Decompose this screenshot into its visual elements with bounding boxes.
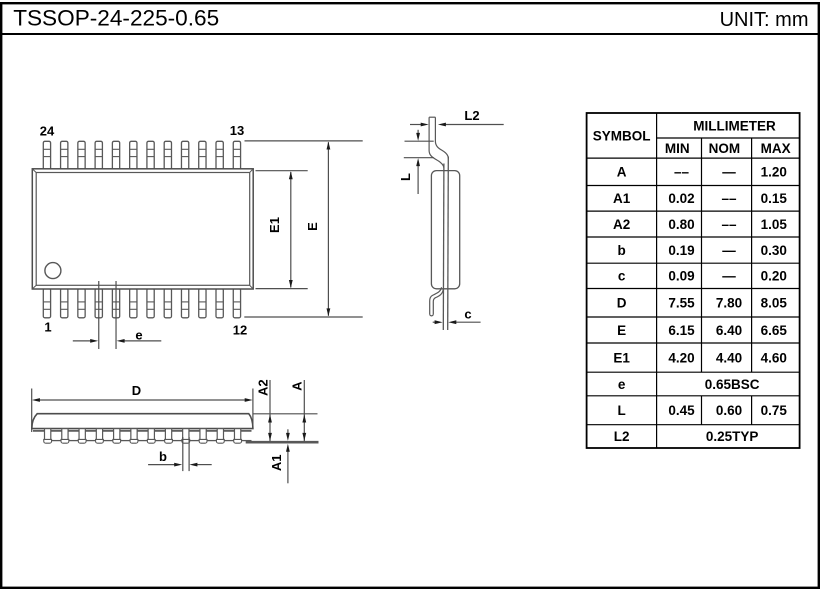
svg-text:MILLIMETER: MILLIMETER xyxy=(693,118,776,133)
svg-text:A1: A1 xyxy=(613,191,631,206)
svg-text:7.80: 7.80 xyxy=(716,296,742,311)
svg-text:A: A xyxy=(617,165,627,180)
svg-text:6.65: 6.65 xyxy=(761,323,788,338)
svg-text:13: 13 xyxy=(230,123,244,138)
svg-text:A: A xyxy=(289,381,304,391)
svg-text:b: b xyxy=(159,449,167,464)
svg-text:L2: L2 xyxy=(464,108,479,123)
svg-text:0.65BSC: 0.65BSC xyxy=(705,377,760,392)
svg-text:TSSOP-24-225-0.65: TSSOP-24-225-0.65 xyxy=(13,5,219,30)
svg-text:c: c xyxy=(618,269,626,284)
svg-text:12: 12 xyxy=(233,323,247,338)
svg-text:—: — xyxy=(722,165,736,180)
svg-text:A2: A2 xyxy=(613,217,630,232)
svg-text:E: E xyxy=(305,222,320,231)
svg-text:––: –– xyxy=(722,191,738,206)
svg-text:4.60: 4.60 xyxy=(761,350,787,365)
svg-text:UNIT: mm: UNIT: mm xyxy=(720,9,809,31)
svg-text:L: L xyxy=(617,403,625,418)
svg-text:24: 24 xyxy=(40,124,55,139)
svg-text:0.09: 0.09 xyxy=(668,269,694,284)
svg-text:4.40: 4.40 xyxy=(716,350,742,365)
svg-text:6.40: 6.40 xyxy=(716,323,742,338)
svg-text:e: e xyxy=(135,328,142,343)
svg-text:E1: E1 xyxy=(267,217,282,233)
svg-text:––: –– xyxy=(722,217,738,232)
svg-text:L2: L2 xyxy=(614,429,630,444)
svg-text:—: — xyxy=(722,243,736,258)
svg-text:6.15: 6.15 xyxy=(668,323,695,338)
svg-text:E: E xyxy=(617,323,626,338)
svg-text:e: e xyxy=(618,377,626,392)
svg-text:1.20: 1.20 xyxy=(761,165,787,180)
svg-text:MIN: MIN xyxy=(665,141,690,156)
svg-text:1.05: 1.05 xyxy=(761,217,788,232)
svg-text:8.05: 8.05 xyxy=(761,296,788,311)
svg-text:—: — xyxy=(722,269,736,284)
svg-text:E1: E1 xyxy=(613,350,630,365)
svg-text:0.15: 0.15 xyxy=(761,191,788,206)
svg-text:NOM: NOM xyxy=(709,141,741,156)
svg-text:D: D xyxy=(617,296,627,311)
svg-text:A1: A1 xyxy=(269,454,284,471)
svg-text:0.25TYP: 0.25TYP xyxy=(706,429,759,444)
svg-text:7.55: 7.55 xyxy=(668,296,695,311)
svg-text:SYMBOL: SYMBOL xyxy=(593,128,651,143)
svg-text:1: 1 xyxy=(44,320,51,335)
svg-text:D: D xyxy=(132,383,141,398)
svg-text:0.60: 0.60 xyxy=(716,403,742,418)
svg-text:0.80: 0.80 xyxy=(668,217,694,232)
svg-text:0.19: 0.19 xyxy=(668,243,694,258)
svg-text:c: c xyxy=(464,307,471,322)
svg-text:––: –– xyxy=(674,165,690,180)
svg-text:L: L xyxy=(398,173,413,181)
svg-text:0.20: 0.20 xyxy=(761,269,787,284)
svg-text:0.75: 0.75 xyxy=(761,403,788,418)
svg-text:b: b xyxy=(617,243,625,258)
svg-text:0.45: 0.45 xyxy=(668,403,695,418)
svg-text:MAX: MAX xyxy=(761,141,791,156)
svg-text:A2: A2 xyxy=(255,379,270,396)
svg-text:4.20: 4.20 xyxy=(668,350,694,365)
svg-text:0.02: 0.02 xyxy=(668,191,694,206)
svg-text:0.30: 0.30 xyxy=(761,243,787,258)
